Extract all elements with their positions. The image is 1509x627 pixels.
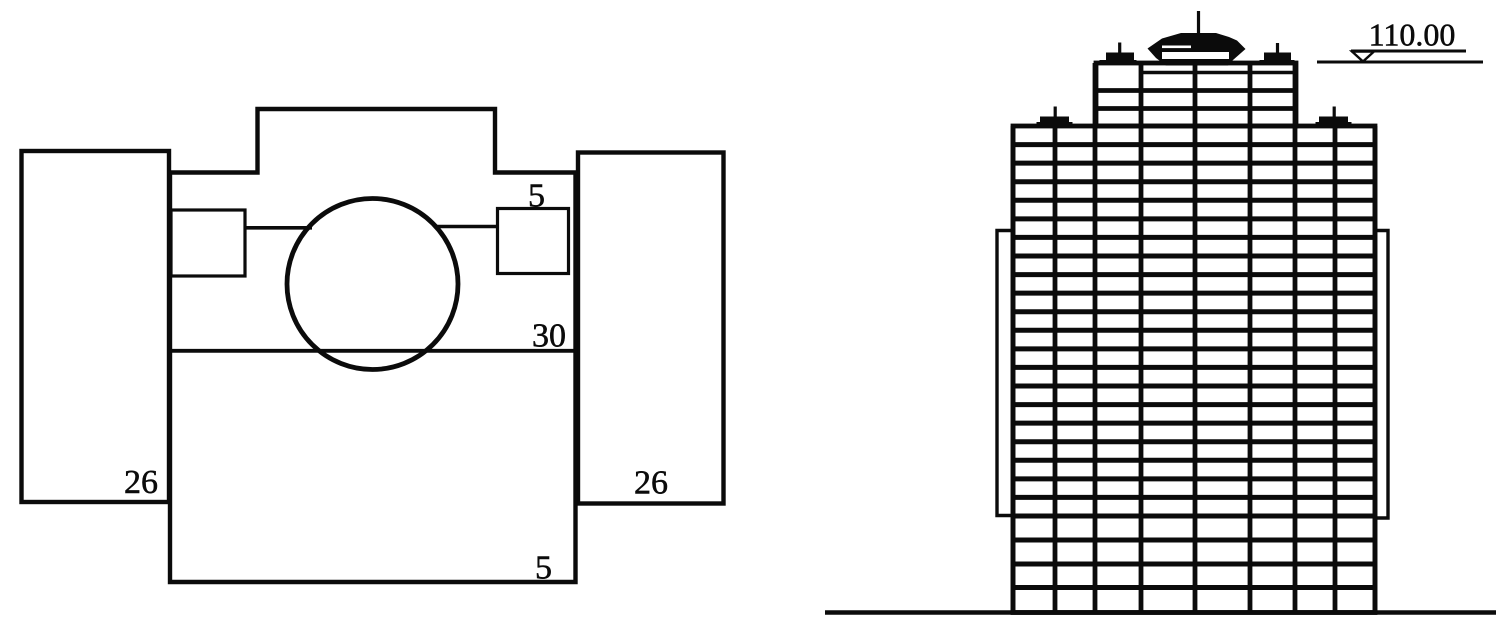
- svg-text:5: 5: [528, 178, 545, 215]
- svg-text:110.00: 110.00: [1369, 17, 1456, 53]
- svg-text:5: 5: [535, 550, 552, 587]
- svg-text:26: 26: [124, 464, 158, 501]
- svg-text:26: 26: [634, 465, 668, 502]
- svg-text:30: 30: [532, 318, 566, 355]
